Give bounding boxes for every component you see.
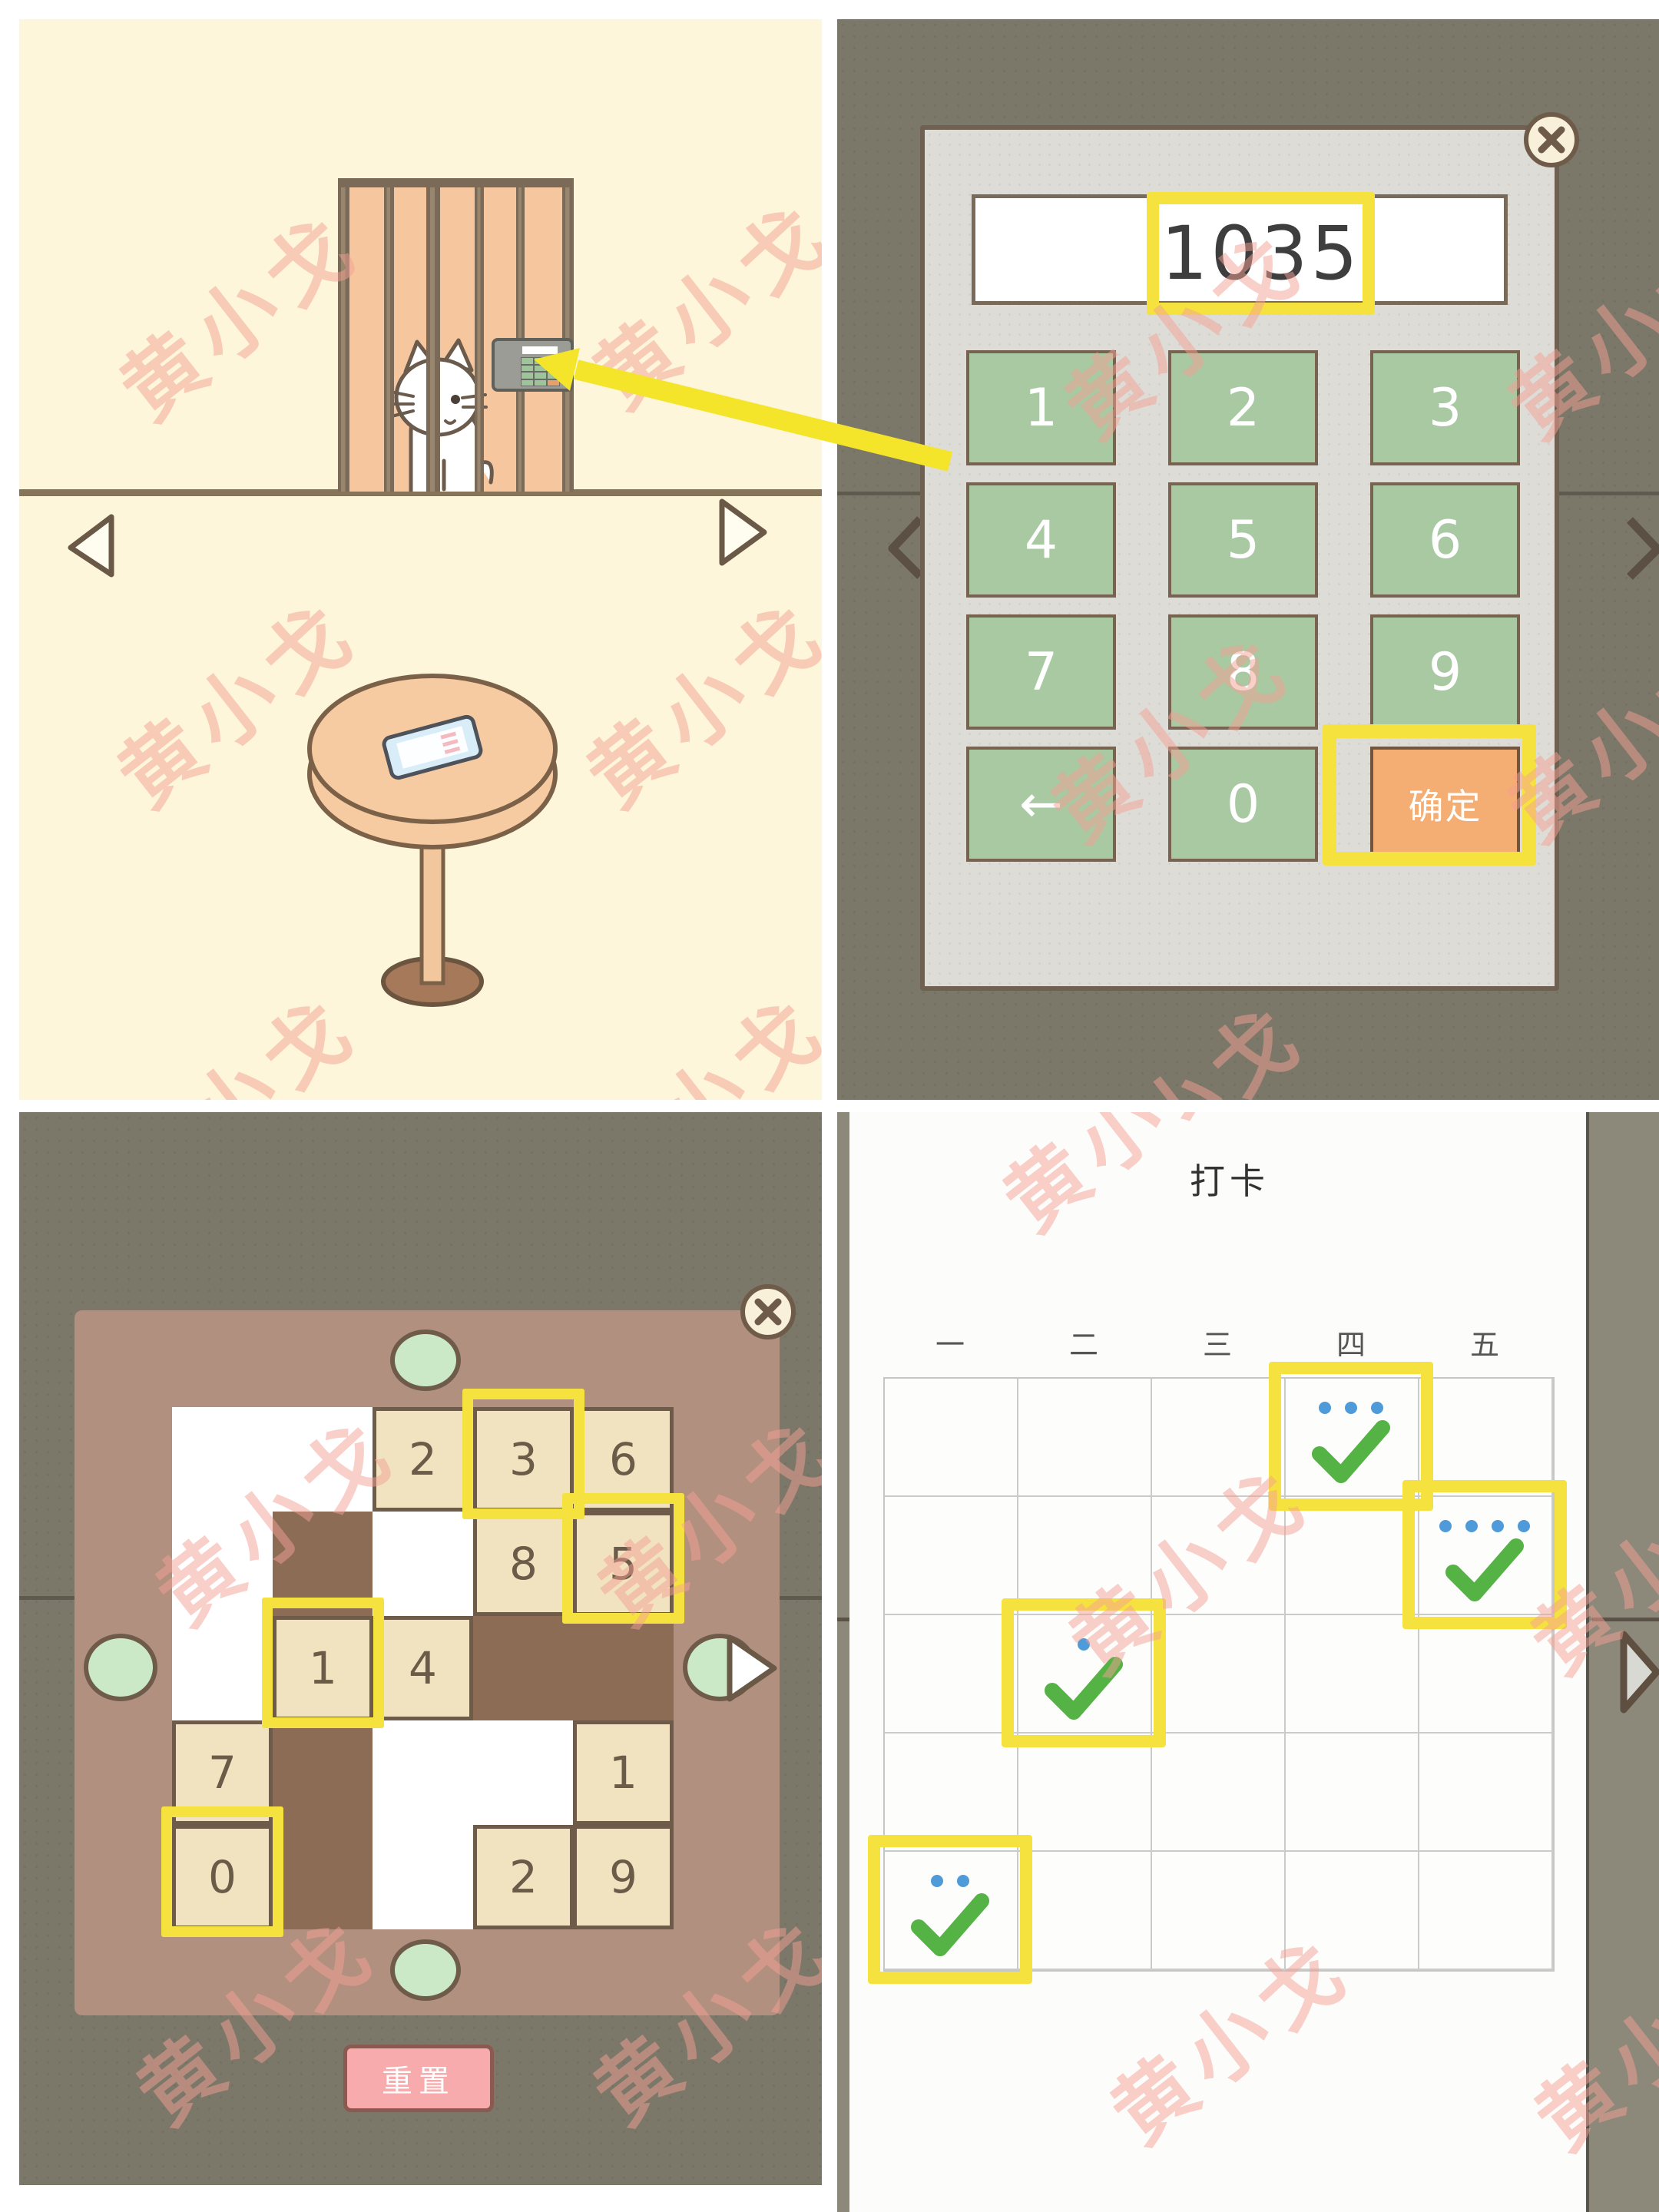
puzzle-empty-cell bbox=[172, 1512, 273, 1616]
walkthrough-collage: 黄小戈黄小戈黄小戈黄小戈黄小戈黄小戈 1035 123456789←0确定 黄小… bbox=[0, 0, 1659, 2212]
puzzle-panel: 236851471029 重置 黄小戈黄小戈黄小戈黄小戈 bbox=[19, 1112, 822, 2185]
calendar-cell[interactable] bbox=[885, 1615, 1018, 1734]
highlight-box-tile bbox=[262, 1598, 384, 1728]
keypad-button-4[interactable]: 4 bbox=[966, 482, 1116, 598]
cage-bar bbox=[516, 178, 525, 492]
calendar-cell[interactable] bbox=[1419, 1379, 1553, 1497]
cage-top-rail bbox=[338, 178, 574, 187]
highlight-box-tile bbox=[161, 1806, 283, 1937]
watermark: 黄小戈 bbox=[560, 568, 822, 829]
puzzle-empty-cell bbox=[172, 1407, 273, 1512]
keypad-button-7[interactable]: 7 bbox=[966, 614, 1116, 730]
calendar-cell[interactable] bbox=[1286, 1615, 1419, 1734]
weekday-header-2: 二 bbox=[1045, 1321, 1122, 1363]
puzzle-right-arrow[interactable] bbox=[724, 1631, 781, 1705]
watermark: 黄小戈 bbox=[1038, 972, 1326, 1100]
weekday-header-3: 三 bbox=[1179, 1321, 1256, 1363]
keypad-button-0[interactable]: 0 bbox=[1168, 747, 1318, 862]
cage-bar bbox=[384, 178, 394, 492]
weekday-header-4: 四 bbox=[1313, 1321, 1389, 1363]
highlight-box-check bbox=[868, 1835, 1032, 1984]
cage-bar bbox=[426, 178, 440, 492]
calendar-cell[interactable] bbox=[1018, 1852, 1152, 1970]
slot-top bbox=[390, 1330, 461, 1391]
puzzle-empty-cell bbox=[273, 1407, 373, 1512]
keypad-device[interactable] bbox=[492, 338, 574, 392]
calendar-cell[interactable] bbox=[1419, 1852, 1553, 1970]
highlight-box-check bbox=[1002, 1598, 1166, 1747]
puzzle-hole-cell bbox=[473, 1616, 574, 1720]
keypad-button-9[interactable]: 9 bbox=[1370, 614, 1520, 730]
cage-bar bbox=[562, 178, 574, 492]
puzzle-hole-cell bbox=[573, 1616, 674, 1720]
puzzle-tile-1[interactable]: 1 bbox=[573, 1720, 674, 1825]
highlight-box-code: 1035 bbox=[1147, 192, 1375, 315]
puzzle-hole-cell bbox=[273, 1825, 373, 1929]
code-value: 1035 bbox=[1161, 210, 1360, 296]
puzzle-empty-cell bbox=[373, 1825, 473, 1929]
calendar-cell[interactable] bbox=[1286, 1852, 1419, 1970]
puzzle-empty-cell bbox=[473, 1720, 574, 1825]
slot-left bbox=[84, 1634, 157, 1701]
highlight-box-tile bbox=[562, 1493, 684, 1624]
close-icon bbox=[754, 1298, 782, 1326]
page-right-arrow[interactable] bbox=[1619, 1630, 1659, 1714]
calendar-cell[interactable] bbox=[885, 1734, 1018, 1852]
watermark: 黄小戈 bbox=[560, 964, 822, 1100]
keypad-button-6[interactable]: 6 bbox=[1370, 482, 1520, 598]
calendar-cell[interactable] bbox=[1018, 1734, 1152, 1852]
calendar-cell[interactable] bbox=[885, 1497, 1018, 1615]
table bbox=[284, 653, 591, 1014]
keypad-button-2[interactable]: 2 bbox=[1168, 350, 1318, 465]
watermark: 黄小戈 bbox=[565, 170, 822, 431]
left-screen-edge bbox=[837, 1112, 849, 2212]
highlight-box-confirm bbox=[1323, 724, 1536, 866]
close-button[interactable] bbox=[740, 1284, 796, 1339]
puzzle-tile-4[interactable]: 4 bbox=[373, 1616, 473, 1720]
puzzle-grid: 236851471029 bbox=[172, 1407, 674, 1929]
calendar-cell[interactable] bbox=[1419, 1615, 1553, 1734]
close-button[interactable] bbox=[1524, 112, 1579, 167]
puzzle-empty-cell bbox=[373, 1720, 473, 1825]
device-mini-keypad bbox=[521, 357, 560, 386]
keypad-button-3[interactable]: 3 bbox=[1370, 350, 1520, 465]
calendar-cell[interactable] bbox=[1286, 1734, 1419, 1852]
puzzle-empty-cell bbox=[373, 1512, 473, 1616]
cat-eye bbox=[451, 395, 460, 404]
checkin-calendar-panel: 打卡 一二三四五 黄小戈黄小戈黄小戈黄小戈黄小戈 bbox=[837, 1112, 1659, 2212]
puzzle-tile-2[interactable]: 2 bbox=[473, 1825, 574, 1929]
cat bbox=[338, 178, 574, 492]
calendar-cell[interactable] bbox=[1419, 1734, 1553, 1852]
puzzle-hole-cell bbox=[273, 1720, 373, 1825]
reset-label: 重置 bbox=[382, 2056, 455, 2101]
chevron-right-icon[interactable] bbox=[1621, 515, 1659, 581]
calendar-cell[interactable] bbox=[1018, 1379, 1152, 1497]
calendar-cell[interactable] bbox=[1018, 1497, 1152, 1615]
highlight-box-check bbox=[1402, 1480, 1567, 1629]
room-scene-panel: 黄小戈黄小戈黄小戈黄小戈黄小戈黄小戈 bbox=[19, 19, 822, 1100]
puzzle-tile-2[interactable]: 2 bbox=[373, 1407, 473, 1512]
puzzle-tile-9[interactable]: 9 bbox=[573, 1825, 674, 1929]
calendar-cell[interactable] bbox=[1152, 1379, 1286, 1497]
device-screen bbox=[522, 346, 558, 354]
puzzle-board: 236851471029 bbox=[75, 1310, 780, 2015]
nav-left-arrow[interactable] bbox=[65, 513, 119, 582]
puzzle-empty-cell bbox=[172, 1616, 273, 1720]
cage-bar bbox=[475, 178, 484, 492]
calendar-cell[interactable] bbox=[1152, 1852, 1286, 1970]
keypad-button-5[interactable]: 5 bbox=[1168, 482, 1318, 598]
weekday-header-5: 五 bbox=[1446, 1321, 1523, 1363]
keypad-button-1[interactable]: 1 bbox=[966, 350, 1116, 465]
keypad-button-8[interactable]: 8 bbox=[1168, 614, 1318, 730]
slot-bottom bbox=[390, 1939, 461, 2001]
nav-right-arrow[interactable] bbox=[717, 496, 770, 565]
keypad-dialog-panel: 1035 123456789←0确定 黄小戈黄小戈黄小戈黄小戈黄小戈 bbox=[837, 19, 1659, 1100]
calendar-cell[interactable] bbox=[885, 1379, 1018, 1497]
keypad-button-←[interactable]: ← bbox=[966, 747, 1116, 862]
calendar-cell[interactable] bbox=[1152, 1615, 1286, 1734]
cage bbox=[338, 178, 574, 492]
calendar-cell[interactable] bbox=[1286, 1497, 1419, 1615]
close-icon bbox=[1538, 126, 1565, 154]
keypad-panel: 1035 123456789←0确定 bbox=[920, 125, 1559, 991]
cage-bar bbox=[338, 178, 349, 492]
calendar-cell[interactable] bbox=[1152, 1734, 1286, 1852]
reset-button[interactable]: 重置 bbox=[343, 2045, 494, 2112]
page-title: 打卡 bbox=[1114, 1154, 1345, 1204]
puzzle-tile-8[interactable]: 8 bbox=[473, 1512, 574, 1616]
calendar-cell[interactable] bbox=[1152, 1497, 1286, 1615]
weekday-header-1: 一 bbox=[912, 1321, 988, 1363]
